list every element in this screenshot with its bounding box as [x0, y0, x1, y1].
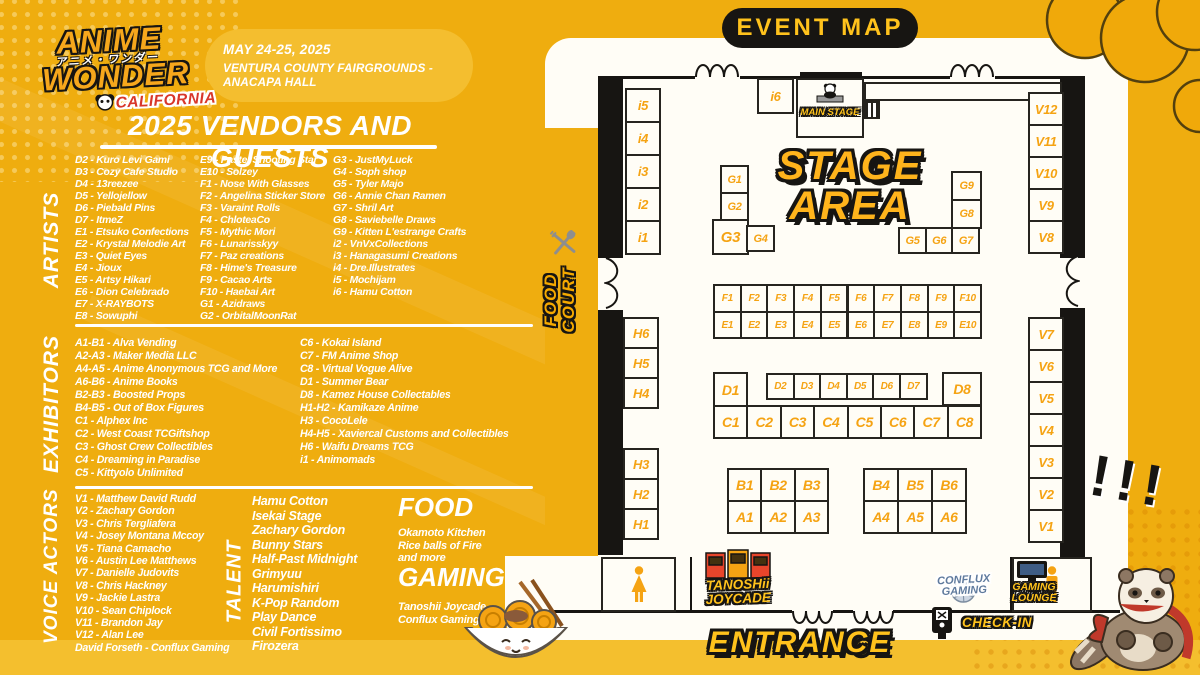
vendor-entry: Okamoto Kitchen [398, 527, 485, 540]
vendor-entry: V12 - Alan Lee [75, 629, 229, 641]
conflux-gaming-logo: CONFLUX GAMING [921, 573, 1006, 599]
vendor-entry: G3 - JustMyLuck [333, 155, 466, 167]
booth-V7: V7 [1028, 317, 1064, 351]
talent-list: Hamu CottonIsekai StageZachary GordonBun… [252, 494, 357, 654]
vendor-entry: C6 - Kokai Island [300, 337, 509, 350]
monitor-icon [1016, 560, 1048, 582]
vendor-entry: D8 - Kamez House Collectables [300, 389, 509, 402]
vendor-entry: V3 - Chris Tergliafera [75, 518, 229, 530]
booth-H4: H4 [623, 377, 659, 409]
vendor-entry: Play Dance [252, 610, 357, 625]
event-date: MAY 24-25, 2025 [223, 42, 331, 57]
vendor-entry: Hamu Cotton [252, 494, 357, 509]
vendor-entry: D5 - Yellojellow [75, 191, 189, 203]
booth-D2: D2 [766, 373, 795, 400]
vendor-entry: i3 - Hanagasumi Creations [333, 251, 466, 263]
vendor-entry: i2 - VnVxCollections [333, 239, 466, 251]
food-list: Okamoto KitchenRice balls of Fireand mor… [398, 527, 485, 565]
booth-H5: H5 [623, 347, 659, 379]
booth-i5: i5 [625, 88, 661, 123]
event-map-title-pill: EVENT MAP [722, 8, 918, 48]
vendor-entry: Firozera [252, 639, 357, 654]
booth-E10: E10 [953, 311, 982, 339]
vendor-entry: A2-A3 - Maker Media LLC [75, 350, 277, 363]
booth-V6: V6 [1028, 349, 1064, 383]
booth-B6: B6 [931, 468, 967, 502]
booth-D1: D1 [713, 372, 748, 407]
arcade-cabinet-icon [705, 549, 771, 579]
vendor-entry: V8 - Chris Hackney [75, 580, 229, 592]
vendor-entry: F8 - Hime's Treasure [200, 263, 325, 275]
vendor-entry: V1 - Matthew David Rudd [75, 493, 229, 505]
vendor-entry: C8 - Virtual Vogue Alive [300, 363, 509, 376]
booth-i6: i6 [757, 78, 794, 114]
stage-area-line2: AREA [728, 186, 972, 226]
vendor-entry: E9 - Pastel Shooting Star [200, 155, 325, 167]
artists-column-2: E9 - Pastel Shooting StarE10 - SolzeyF1 … [200, 155, 325, 323]
vendor-entry: C5 - Kittyolo Unlimited [75, 467, 277, 480]
lounge-line2: LOUNGE [1004, 593, 1064, 604]
booth-A4: A4 [863, 500, 899, 534]
check-in-kiosk-icon [930, 606, 954, 640]
vendor-entry: A4-A5 - Anime Anonymous TCG and More [75, 363, 277, 376]
door-entrance-left [792, 611, 834, 625]
booth-E8: E8 [900, 311, 929, 339]
vendor-entry: G1 - Azidraws [200, 299, 325, 311]
booth-H1: H1 [623, 508, 659, 540]
booth-H3: H3 [623, 448, 659, 480]
vendor-entry: G7 - Shril Art [333, 203, 466, 215]
event-venue: VENTURA COUNTY FAIRGROUNDS - ANACAPA HAL… [223, 61, 463, 89]
exhibitors-column-2: C6 - Kokai IslandC7 - FM Anime ShopC8 - … [300, 337, 509, 467]
vendor-entry: E6 - Dion Celebrado [75, 287, 189, 299]
booth-B3: B3 [794, 468, 829, 502]
food-court-line2: COURT [560, 250, 578, 350]
booth-V2: V2 [1028, 477, 1064, 511]
title-underline [100, 145, 437, 149]
booth-F2: F2 [740, 284, 769, 313]
booth-i1: i1 [625, 220, 661, 255]
cloud-decoration [1030, 0, 1200, 176]
vendor-entry: D4 - 13reezee [75, 179, 189, 191]
booth-V8: V8 [1028, 220, 1064, 254]
vendor-entry: C2 - West Coast TCGiftshop [75, 428, 277, 441]
vendor-entry: G5 - Tyler Majo [333, 179, 466, 191]
booth-D5: D5 [846, 373, 875, 400]
booth-A6: A6 [931, 500, 967, 534]
booth-G6: G6 [925, 227, 954, 254]
vendor-entry: H1-H2 - Kamikaze Anime [300, 402, 509, 415]
vendor-entry: F9 - Cacao Arts [200, 275, 325, 287]
vendor-entry: Half-Past Midnight [252, 552, 357, 567]
booth-F7: F7 [873, 284, 902, 313]
booth-V5: V5 [1028, 381, 1064, 415]
vendor-entry: F6 - Lunarisskyy [200, 239, 325, 251]
booth-C8: C8 [947, 405, 982, 439]
vendor-entry: V7 - Danielle Judovits [75, 567, 229, 579]
booth-V1: V1 [1028, 509, 1064, 543]
vendor-entry: E5 - Artsy Hikari [75, 275, 189, 287]
booth-E6: E6 [847, 311, 876, 339]
vendor-entry: F2 - Angelina Sticker Store [200, 191, 325, 203]
vendor-entry: Harumishiri [252, 581, 357, 596]
booth-E7: E7 [873, 311, 902, 339]
vendor-entry: i1 - Animomads [300, 454, 509, 467]
section-label-talent: TALENT [224, 527, 247, 637]
booth-C6: C6 [880, 405, 915, 439]
event-map-poster: ANIME WONDER アニメ・ワンダー CALIFORNIA MAY 24-… [0, 0, 1200, 675]
stage-area-label: STAGE AREA [728, 146, 972, 226]
entrance-label: ENTRANCE [690, 626, 910, 660]
tanoshii-joycade-logo: TANOSHii JOYCADE [688, 576, 789, 606]
booth-C5: C5 [847, 405, 882, 439]
booth-D3: D3 [793, 373, 822, 400]
section-label-food: FOOD [398, 492, 473, 523]
vendor-entry: Zachary Gordon [252, 523, 357, 538]
vendor-entry: i4 - Dre.Illustrates [333, 263, 466, 275]
food-court-label: FOOD COURT [542, 250, 586, 350]
vendor-entry: H3 - CocoLele [300, 415, 509, 428]
vendor-entry: G9 - Kitten L'estrange Crafts [333, 227, 466, 239]
booth-B5: B5 [897, 468, 933, 502]
booth-A3: A3 [794, 500, 829, 534]
food-court-line1: FOOD [542, 250, 560, 350]
vendor-entry: Grimyuu [252, 567, 357, 582]
booth-G7: G7 [951, 227, 980, 254]
artists-column-1: D2 - Kuro Levi GamiD3 - Cozy Cafe Studio… [75, 155, 189, 323]
booth-B2: B2 [760, 468, 795, 502]
vendor-entry: C7 - FM Anime Shop [300, 350, 509, 363]
booth-E1: E1 [713, 311, 742, 339]
booth-F9: F9 [927, 284, 956, 313]
vendor-entry: V4 - Josey Montana Mccoy [75, 530, 229, 542]
vendor-entry: F7 - Paz creations [200, 251, 325, 263]
vendor-entry: A6-B6 - Anime Books [75, 376, 277, 389]
booth-i3: i3 [625, 154, 661, 189]
booth-C2: C2 [746, 405, 781, 439]
exclamation-decoration: !!! [1085, 442, 1174, 522]
vendor-entry: B4-B5 - Out of Box Figures [75, 402, 277, 415]
vendor-entry: E2 - Krystal Melodie Art [75, 239, 189, 251]
vendor-entry: D6 - Piebald Pins [75, 203, 189, 215]
exhibitors-column-1: A1-B1 - Alva VendingA2-A3 - Maker Media … [75, 337, 277, 480]
booth-V3: V3 [1028, 445, 1064, 479]
vendor-entry: B2-B3 - Boosted Props [75, 389, 277, 402]
booth-D6: D6 [872, 373, 901, 400]
booth-E3: E3 [766, 311, 795, 339]
section-label-voice-actors: VOICE ACTORS [41, 494, 63, 644]
wall-segment [833, 610, 853, 613]
vendor-entry: H4-H5 - Xaviercal Customs and Collectibl… [300, 428, 509, 441]
vendor-entry: E7 - X-RAYBOTS [75, 299, 189, 311]
section-divider [75, 486, 533, 489]
booth-C1: C1 [713, 405, 748, 439]
wall-segment [598, 310, 623, 555]
vendor-entry: E10 - Solzey [200, 167, 325, 179]
booth-V4: V4 [1028, 413, 1064, 447]
booth-F6: F6 [847, 284, 876, 313]
vendor-entry: C4 - Dreaming in Paradise [75, 454, 277, 467]
main-stage-label: MAIN STAGE [798, 108, 862, 118]
door-entrance-right [853, 611, 895, 625]
stage-area-line1: STAGE [728, 146, 972, 186]
ramen-bowl-icon [458, 578, 573, 675]
wall-segment [598, 78, 623, 258]
vendor-entry: David Forseth - Conflux Gaming [75, 642, 229, 654]
door-food-court [604, 257, 622, 310]
booth-F8: F8 [900, 284, 929, 313]
vendor-entry: F1 - Nose With Glasses [200, 179, 325, 191]
booth-F3: F3 [766, 284, 795, 313]
booth-A2: A2 [760, 500, 795, 534]
booth-i2: i2 [625, 187, 661, 222]
vendor-entry: D1 - Summer Bear [300, 376, 509, 389]
booth-G5: G5 [898, 227, 927, 254]
panda-dj-icon [813, 81, 847, 103]
booth-F10: F10 [953, 284, 982, 313]
door-top-right [950, 63, 995, 77]
section-label-artists: ARTISTS [40, 190, 64, 290]
vendor-entry: V11 - Brandon Jay [75, 617, 229, 629]
artists-column-3: G3 - JustMyLuckG4 - Soph shopG5 - Tyler … [333, 155, 466, 299]
vendor-entry: i6 - Hamu Cotton [333, 287, 466, 299]
booth-F5: F5 [820, 284, 849, 313]
vendor-entry: E8 - Sowuphi [75, 311, 189, 323]
event-map-title: EVENT MAP [736, 14, 903, 42]
date-venue-pill: MAY 24-25, 2025 VENTURA COUNTY FAIRGROUN… [205, 29, 473, 102]
vendor-entry: V2 - Zachary Gordon [75, 505, 229, 517]
vendor-entry: F4 - ChloteaCo [200, 215, 325, 227]
booth-V9: V9 [1028, 188, 1064, 222]
lounge-line1: GAMING [1004, 582, 1064, 593]
vendor-entry: H6 - Waifu Dreams TCG [300, 441, 509, 454]
vendor-entry: C1 - Alphex Inc [75, 415, 277, 428]
vendor-entry: i5 - Mochijam [333, 275, 466, 287]
section-divider [75, 324, 533, 327]
vendor-entry: G2 - OrbitalMoonRat [200, 311, 325, 323]
check-in-label: CHECK-IN [962, 615, 1032, 630]
door-top-left [695, 63, 740, 77]
vendor-entry: E1 - Etsuko Confections [75, 227, 189, 239]
booth-i4: i4 [625, 121, 661, 156]
main-stage-box: MAIN STAGE [796, 78, 864, 138]
booth-G4: G4 [746, 225, 775, 252]
vendor-entry: D7 - ItmeZ [75, 215, 189, 227]
vendor-entry: F3 - Varaint Rolls [200, 203, 325, 215]
booth-C4: C4 [813, 405, 848, 439]
vendor-entry: Isekai Stage [252, 509, 357, 524]
booth-E2: E2 [740, 311, 769, 339]
voice-actors-list: V1 - Matthew David RuddV2 - Zachary Gord… [75, 493, 229, 654]
booth-D7: D7 [899, 373, 928, 400]
vendor-entry: V10 - Sean Chiplock [75, 605, 229, 617]
booth-B4: B4 [863, 468, 899, 502]
booth-A1: A1 [727, 500, 762, 534]
booth-E4: E4 [793, 311, 822, 339]
woman-icon [629, 566, 649, 604]
stage-stairs [864, 101, 880, 119]
booth-E5: E5 [820, 311, 849, 339]
ferret-mascot [1068, 548, 1200, 675]
booth-B1: B1 [727, 468, 762, 502]
booth-C3: C3 [780, 405, 815, 439]
vendor-entry: E3 - Quiet Eyes [75, 251, 189, 263]
vendor-entry: K-Pop Random [252, 596, 357, 611]
door-right-wall [1062, 255, 1080, 308]
gaming-lounge-logo: GAMING LOUNGE [1004, 582, 1064, 603]
booth-D4: D4 [819, 373, 848, 400]
restroom-women [601, 557, 676, 612]
vendor-entry: Civil Fortissimo [252, 625, 357, 640]
vendor-entry: V6 - Austin Lee Matthews [75, 555, 229, 567]
vendor-entry: Bunny Stars [252, 538, 357, 553]
vendor-entry: C3 - Ghost Crew Collectibles [75, 441, 277, 454]
vendor-entry: V9 - Jackie Lastra [75, 592, 229, 604]
vendor-entry: A1-B1 - Alva Vending [75, 337, 277, 350]
booth-A5: A5 [897, 500, 933, 534]
vendor-entry: D2 - Kuro Levi Gami [75, 155, 189, 167]
booth-C7: C7 [913, 405, 948, 439]
vendor-entry: F5 - Mythic Mori [200, 227, 325, 239]
booth-D8: D8 [942, 372, 982, 406]
booth-H6: H6 [623, 317, 659, 349]
booth-E9: E9 [927, 311, 956, 339]
vendor-entry: F10 - Haebai Art [200, 287, 325, 299]
booth-F4: F4 [793, 284, 822, 313]
vendor-entry: V5 - Tiana Camacho [75, 543, 229, 555]
vendor-entry: Rice balls of Fire [398, 540, 485, 553]
vendor-entry: G4 - Soph shop [333, 167, 466, 179]
booth-F1: F1 [713, 284, 742, 313]
booth-H2: H2 [623, 478, 659, 510]
vendor-entry: D3 - Cozy Cafe Studio [75, 167, 189, 179]
section-label-exhibitors: EXHIBITORS [40, 343, 64, 473]
vendor-entry: G8 - Saviebelle Draws [333, 215, 466, 227]
vendor-entry: E4 - Jioux [75, 263, 189, 275]
vendor-entry: G6 - Annie Chan Ramen [333, 191, 466, 203]
